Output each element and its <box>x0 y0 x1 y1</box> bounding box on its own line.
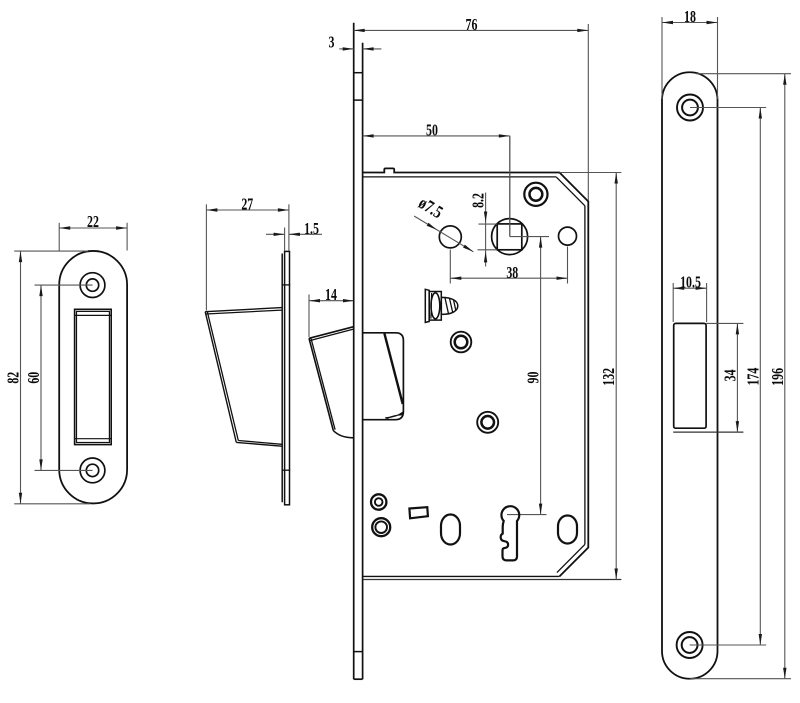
svg-text:38: 38 <box>506 264 518 283</box>
svg-text:82: 82 <box>5 372 24 384</box>
svg-text:3: 3 <box>329 33 335 52</box>
svg-text:22: 22 <box>87 213 99 232</box>
svg-text:8.2: 8.2 <box>470 193 489 208</box>
svg-text:50: 50 <box>426 122 438 141</box>
svg-text:76: 76 <box>466 16 478 35</box>
svg-text:27: 27 <box>241 196 253 215</box>
svg-text:18: 18 <box>684 8 696 27</box>
svg-text:34: 34 <box>721 369 740 381</box>
svg-text:14: 14 <box>325 286 337 305</box>
svg-text:174: 174 <box>744 367 763 385</box>
svg-text:90: 90 <box>525 372 544 384</box>
svg-text:196: 196 <box>769 368 788 386</box>
svg-text:60: 60 <box>25 372 44 384</box>
svg-text:1.5: 1.5 <box>304 220 319 239</box>
svg-text:10.5: 10.5 <box>680 274 701 293</box>
svg-text:132: 132 <box>600 368 619 386</box>
